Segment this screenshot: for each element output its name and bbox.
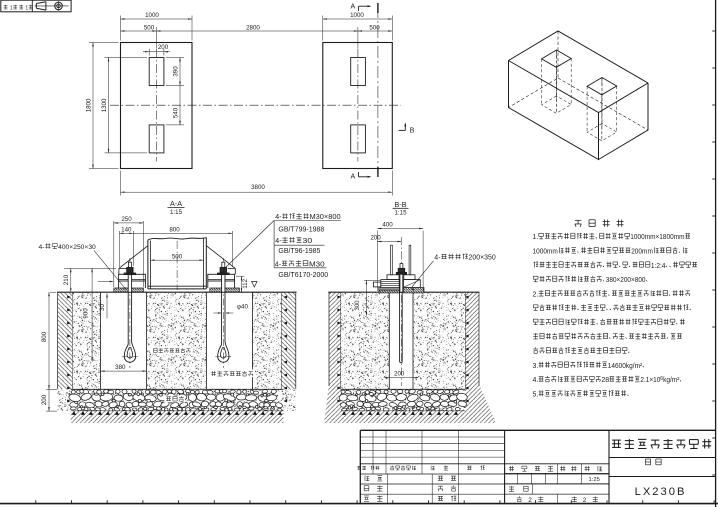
svg-text:GB/T6170-2000: GB/T6170-2000 xyxy=(278,272,328,279)
svg-text:4-: 4- xyxy=(275,238,282,245)
svg-text:1800: 1800 xyxy=(86,98,93,112)
svg-text:3800: 3800 xyxy=(251,184,265,191)
svg-text:1:2:4: 1:2:4 xyxy=(651,263,666,270)
svg-text:140: 140 xyxy=(121,227,132,234)
svg-text:A: A xyxy=(350,174,355,181)
svg-text:900: 900 xyxy=(83,308,90,319)
svg-text:200mm: 200mm xyxy=(631,249,653,256)
svg-text:30: 30 xyxy=(303,238,313,245)
svg-text:1000mm×1800mm: 1000mm×1800mm xyxy=(630,234,684,241)
svg-text:380: 380 xyxy=(115,364,126,371)
svg-text:1000: 1000 xyxy=(145,12,159,19)
svg-text:200: 200 xyxy=(394,370,405,377)
svg-text:2: 2 xyxy=(583,497,587,504)
svg-text:112: 112 xyxy=(243,278,249,288)
svg-text:A: A xyxy=(350,4,355,11)
svg-text:φ40: φ40 xyxy=(237,304,248,311)
svg-text:1:15: 1:15 xyxy=(394,210,407,217)
svg-text:GB/T96-1985: GB/T96-1985 xyxy=(278,248,320,255)
svg-text:200: 200 xyxy=(370,235,381,242)
svg-text:500: 500 xyxy=(144,24,155,31)
svg-text:380×200×800: 380×200×800 xyxy=(606,277,646,284)
svg-text:1000mm: 1000mm xyxy=(533,249,558,256)
svg-text:B-B: B-B xyxy=(395,200,407,209)
svg-text:200×350: 200×350 xyxy=(469,255,496,262)
svg-text:400×250×30: 400×250×30 xyxy=(58,244,96,251)
svg-text:300: 300 xyxy=(355,300,361,311)
svg-text:500: 500 xyxy=(172,253,183,260)
svg-text:GB/T799-1988: GB/T799-1988 xyxy=(278,227,324,234)
svg-text:A-A: A-A xyxy=(170,199,182,208)
svg-text:540: 540 xyxy=(173,107,180,118)
svg-text:390: 390 xyxy=(173,66,180,77)
svg-text:200: 200 xyxy=(158,44,169,51)
svg-text:4-: 4- xyxy=(275,214,282,221)
svg-text:28: 28 xyxy=(601,377,609,384)
svg-text:800: 800 xyxy=(41,331,48,342)
svg-text:1.: 1. xyxy=(533,234,539,241)
svg-text:1000: 1000 xyxy=(350,12,364,19)
svg-text:400: 400 xyxy=(382,221,393,228)
svg-text:210: 210 xyxy=(63,274,70,285)
svg-text:1300: 1300 xyxy=(101,98,108,112)
svg-text:2800: 2800 xyxy=(246,24,260,31)
svg-text:800: 800 xyxy=(169,227,180,234)
svg-text:LX230B: LX230B xyxy=(635,486,687,498)
svg-text:200: 200 xyxy=(41,394,48,405)
svg-text:2: 2 xyxy=(528,497,532,504)
svg-text:M30: M30 xyxy=(309,261,325,268)
svg-text:4-: 4- xyxy=(275,261,282,268)
svg-text:250: 250 xyxy=(121,216,132,223)
svg-text:4-: 4- xyxy=(434,255,441,262)
svg-text:B: B xyxy=(410,128,415,135)
svg-text:5.: 5. xyxy=(533,392,539,399)
svg-text:3.: 3. xyxy=(533,363,539,370)
svg-text:4-: 4- xyxy=(39,244,45,251)
svg-text:500: 500 xyxy=(369,24,380,31)
svg-text:2.1×10: 2.1×10 xyxy=(640,377,660,384)
svg-text:30: 30 xyxy=(99,304,106,311)
svg-text:kg/m²: kg/m² xyxy=(663,377,680,384)
svg-text:4.: 4. xyxy=(533,377,539,384)
svg-text:2.: 2. xyxy=(533,291,539,298)
svg-text:1: 1 xyxy=(10,5,13,11)
svg-text:M30×800: M30×800 xyxy=(310,214,341,221)
svg-text:1: 1 xyxy=(25,5,28,11)
svg-text:14600kg/m²: 14600kg/m² xyxy=(608,363,643,370)
svg-text:1:25: 1:25 xyxy=(589,477,600,483)
svg-text:1:15: 1:15 xyxy=(170,209,183,216)
